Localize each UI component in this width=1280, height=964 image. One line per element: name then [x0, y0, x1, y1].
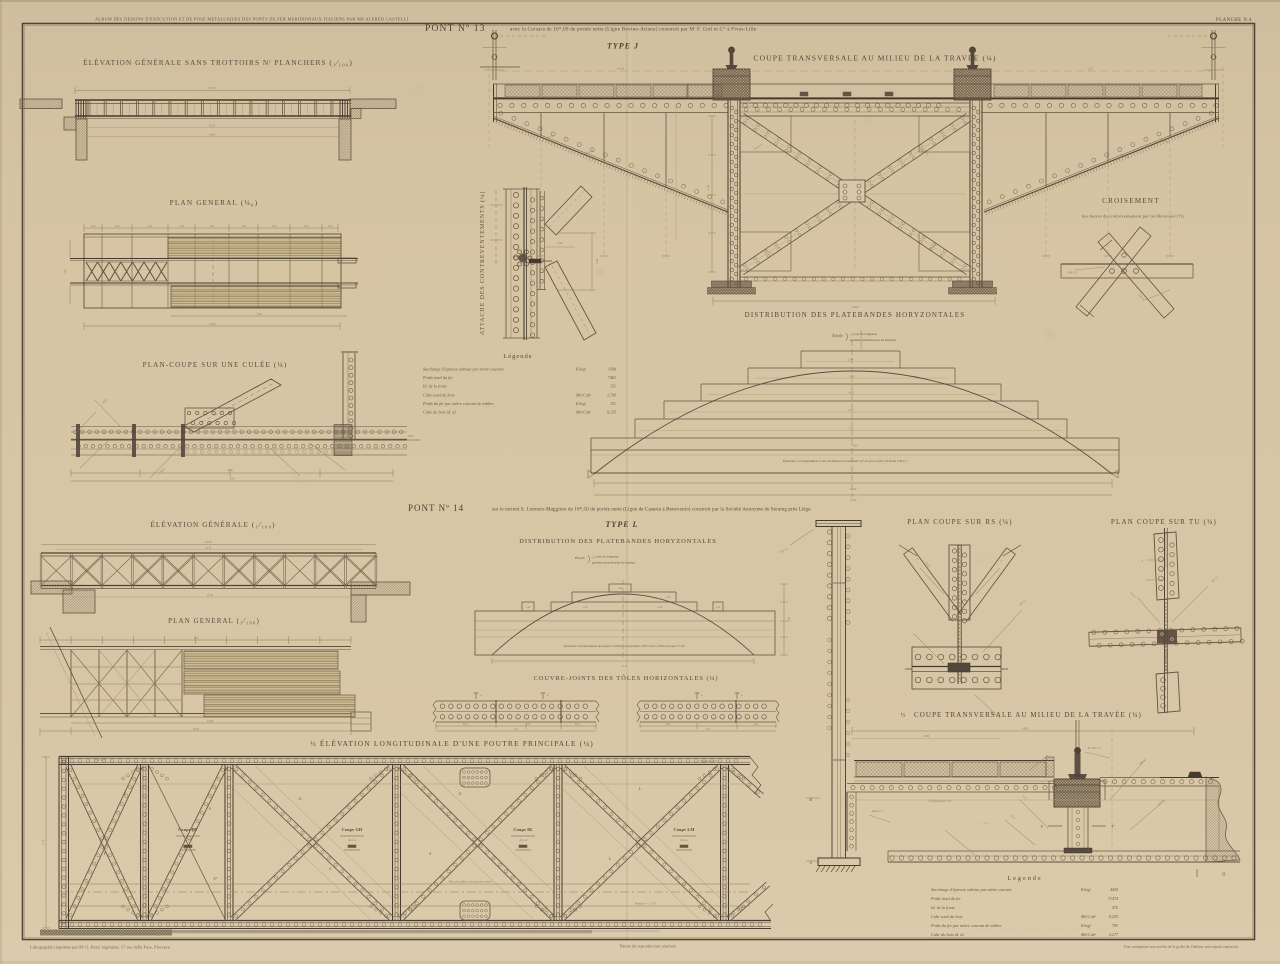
svg-text:1,20: 1,20	[716, 606, 721, 609]
svg-text:ATTACHE DES CONTREVENTEMENTS: ATTACHE DES CONTREVENTEMENTS (¼)	[479, 191, 486, 335]
svg-text:14,00: 14,00	[209, 134, 216, 137]
svg-text:G: G	[459, 791, 462, 796]
svg-text:CROISEMENT: CROISEMENT	[1102, 197, 1160, 205]
svg-text:164 à 12: 164 à 12	[680, 839, 690, 842]
svg-text:7481: 7481	[608, 375, 616, 380]
svg-text:MètʳCubᵉ: MètʳCubᵉ	[1080, 914, 1097, 919]
svg-text:1,00: 1,00	[148, 225, 153, 228]
svg-text:6,40: 6,40	[849, 409, 854, 412]
svg-text:240×12: 240×12	[1068, 272, 1077, 275]
svg-text:1,20: 1,20	[658, 606, 663, 609]
svg-text:16,00: 16,00	[193, 728, 200, 731]
svg-text:9: 9	[1222, 872, 1225, 878]
svg-text:½ ÉLÉVATION LONGITUDINALE D': ½ ÉLÉVATION LONGITUDINALE D'UNE POUTRE P…	[310, 738, 594, 748]
svg-text:1,00: 1,00	[304, 225, 309, 228]
svg-text:2,00: 2,00	[194, 637, 199, 640]
svg-text:Kilogˢ: Kilogˢ	[1080, 887, 1091, 892]
svg-text:2,40: 2,40	[707, 185, 710, 190]
svg-text:Échelle: Échelle	[574, 555, 586, 560]
svg-text:G: G	[299, 796, 302, 801]
svg-text:164 à 12: 164 à 12	[519, 839, 529, 842]
svg-text:Droits de reproduction réservé: Droits de reproduction réservés	[620, 944, 677, 949]
svg-text:₁⁄₅ pour les longueurs: ₁⁄₅ pour les longueurs	[850, 332, 878, 336]
svg-text:← a →: ← a →	[980, 821, 989, 825]
svg-text:0,31: 0,31	[526, 723, 531, 726]
svg-text:1,50: 1,50	[64, 269, 67, 274]
svg-text:Coupe GH: Coupe GH	[342, 827, 363, 832]
svg-text:Surcharge d'épreuve admise par: Surcharge d'épreuve admise par mètre cou…	[931, 887, 1012, 892]
svg-text:1,00: 1,00	[91, 225, 96, 228]
svg-text:PLAN COUPE SUR TU (¼): PLAN COUPE SUR TU (¼)	[1111, 518, 1217, 526]
svg-text:Coupe LM: Coupe LM	[673, 827, 694, 832]
svg-text:1,900: 1,900	[923, 735, 930, 738]
svg-text:S: S	[209, 806, 211, 811]
svg-text:₁⁄₂₀ pour les longueurs: ₁⁄₂₀ pour les longueurs	[592, 555, 619, 559]
svg-text:151: 151	[610, 384, 616, 389]
svg-text:axe de la travure: axe de la travure	[859, 329, 863, 350]
svg-text:1,20: 1,20	[618, 587, 623, 590]
svg-text:Poids du fer par mètre courant: Poids du fer par mètre courant de tablie…	[930, 923, 1002, 928]
svg-text:δ: δ	[429, 851, 431, 856]
svg-text:15,00: 15,00	[207, 720, 214, 723]
svg-text:·: ·	[576, 375, 577, 380]
svg-text:Échelle: Échelle	[831, 333, 843, 338]
svg-text:16,50: 16,50	[207, 594, 214, 597]
svg-text:e': e'	[1000, 559, 1002, 563]
svg-text:1,20: 1,20	[583, 606, 588, 609]
svg-text:Id. de la fonte: Id. de la fonte	[422, 384, 447, 389]
svg-text:RAIL: RAIL	[408, 435, 414, 438]
svg-text:1,20: 1,20	[666, 596, 671, 599]
svg-text:Cube total du bois: Cube total du bois	[423, 392, 455, 397]
svg-text:Poids total du fer: Poids total du fer	[930, 896, 961, 901]
svg-text:·: ·	[576, 384, 577, 389]
svg-text:0,45·₃: 0,45·₃	[575, 723, 581, 726]
svg-text:Cube du bois id.: Cube du bois id. id.	[423, 410, 457, 415]
svg-text:1,00: 1,00	[179, 225, 184, 228]
svg-text:Légende: Légende	[503, 353, 532, 360]
svg-text:sur le torrent S. Lorenzo-Magg: sur le torrent S. Lorenzo-Maggiore de 16…	[492, 506, 811, 513]
svg-text:Coupe EF: Coupe EF	[178, 827, 198, 832]
svg-text:164 à 12: 164 à 12	[184, 839, 194, 842]
svg-text:ÉLÉVATION GÉNÉRALE SANS TRO: ÉLÉVATION GÉNÉRALE SANS TROTTOIRS Nⁱ PLA…	[83, 57, 353, 67]
svg-text:1,00: 1,00	[328, 225, 333, 228]
svg-text:·: ·	[1081, 896, 1082, 901]
svg-text:DISTRIBUTION DES PLATEBANDES: DISTRIBUTION DES PLATEBANDES HORYZONTALE…	[745, 311, 966, 319]
svg-text:PONT Nº 13: PONT Nº 13	[425, 24, 486, 34]
svg-text:DISTRIBUTION DES PLATEBANDES: DISTRIBUTION DES PLATEBANDES HORYZONTALE…	[519, 538, 717, 545]
svg-text:1,90: 1,90	[848, 359, 853, 362]
svg-text:ÉLÉVATION GÉNÉRALE (₁⁄₁₀₀): ÉLÉVATION GÉNÉRALE (₁⁄₁₀₀)	[150, 519, 275, 529]
svg-text:Cube du bois id.: Cube du bois id. id.	[931, 932, 965, 937]
svg-text:Kilogˢ: Kilogˢ	[1080, 923, 1091, 928]
svg-text:151: 151	[610, 401, 616, 406]
svg-text:4,90: 4,90	[849, 392, 854, 395]
svg-text:Fig. à M.: Fig. à M.	[94, 758, 106, 762]
svg-text:PLAN-COUPE SUR UNE CULÉE (¼: PLAN-COUPE SUR UNE CULÉE (¼)	[143, 359, 288, 369]
svg-text:·: ·	[1081, 905, 1082, 910]
svg-text:COUPE TRANSVERSALE AU MILIE: COUPE TRANSVERSALE AU MILIEU DE LA TRAVÉ…	[914, 711, 1142, 719]
svg-text:1,00: 1,00	[210, 225, 215, 228]
svg-text:4450: 4450	[1110, 887, 1118, 892]
svg-text:Entraxes à 2ᵐ: Entraxes à 2ᵐ	[699, 759, 718, 763]
svg-text:9,40: 9,40	[853, 445, 858, 448]
svg-text:1500: 1500	[608, 367, 616, 372]
svg-text:0,60: 0,60	[666, 723, 671, 726]
svg-text:0,45·₃: 0,45·₃	[463, 723, 469, 726]
svg-text:M 160×14: M 160×14	[1088, 746, 1101, 750]
svg-text:TYPE J: TYPE J	[607, 42, 639, 51]
svg-text:MètʳCubᵉ: MètʳCubᵉ	[1080, 932, 1097, 937]
svg-text:TYPE L: TYPE L	[606, 520, 639, 529]
svg-text:Kilogˢ: Kilogˢ	[575, 367, 586, 372]
svg-text:Legende: Legende	[1007, 875, 1042, 882]
svg-text:avec la Corsara de 10ᵐ,00 de p: avec la Corsara de 10ᵐ,00 de portée nett…	[510, 26, 757, 33]
svg-text:7,90: 7,90	[849, 428, 854, 431]
svg-text:0,45: 0,45	[788, 617, 791, 622]
svg-text:783: 783	[1112, 923, 1118, 928]
svg-text:Rails à T: Rails à T	[871, 809, 883, 813]
svg-text:PONT Nº 14: PONT Nº 14	[408, 503, 464, 513]
svg-text:Id. de la fonte: Id. de la fonte	[930, 905, 955, 910]
svg-text:1,02: 1,02	[706, 728, 711, 731]
svg-text:13,10: 13,10	[621, 665, 628, 668]
svg-text:1,00: 1,00	[241, 225, 246, 228]
svg-text:1,20: 1,20	[526, 606, 531, 609]
svg-text:164 à 12: 164 à 12	[348, 839, 358, 842]
svg-text:F: F	[103, 851, 107, 856]
svg-text:PLANCHE N.4: PLANCHE N.4	[1216, 18, 1252, 23]
svg-text:0,42: 0,42	[754, 723, 759, 726]
svg-text:½: ½	[901, 712, 906, 719]
svg-text:MètʳCubᵉ: MètʳCubᵉ	[575, 410, 592, 415]
svg-text:Kilogˢ: Kilogˢ	[575, 401, 586, 406]
svg-text:Surcharge d'épreuve admise par: Surcharge d'épreuve admise par mètre cou…	[423, 367, 504, 372]
svg-text:470: 470	[1112, 905, 1118, 910]
svg-text:PLAN GENERAL (₁⁄₁₀₀): PLAN GENERAL (₁⁄₁₀₀)	[168, 617, 260, 625]
svg-text:Poids total du fer: Poids total du fer	[422, 375, 453, 380]
svg-text:Coupe IK: Coupe IK	[513, 827, 533, 832]
svg-text:des barres du contreventement: des barres du contreventement par les Bo…	[1082, 214, 1184, 219]
svg-text:1,00: 1,00	[272, 225, 277, 228]
svg-text:1,45: 1,45	[514, 728, 519, 731]
svg-text:71474: 71474	[1108, 896, 1118, 901]
svg-text:COUPE TRANSVERSALE AU MILIE: COUPE TRANSVERSALE AU MILIEU DE LA TRAVÉ…	[753, 53, 996, 63]
svg-text:δ: δ	[329, 866, 331, 871]
svg-text:PLAN GENERAL (¼₀): PLAN GENERAL (¼₀)	[170, 199, 259, 207]
svg-text:grandeur naturelle pour les ha: grandeur naturelle pour les hauteurs	[850, 338, 897, 342]
svg-text:Poids du fer par mètre courant: Poids du fer par mètre courant de tablie…	[422, 401, 494, 406]
svg-text:Tout exemplaire non revêtu de: Tout exemplaire non revêtu de la griffe …	[1124, 945, 1238, 949]
svg-text:Plan du tablier (niveau des ve: Plan du tablier (niveau des vents)	[447, 880, 491, 884]
svg-text:ALBUM DES DESSINS D'EXECUTION: ALBUM DES DESSINS D'EXECUTION ET DE POSE…	[95, 17, 409, 22]
svg-text:COUVRE-JOINTS DES TÔLES HOR: COUVRE-JOINTS DES TÔLES HORIZONTALES (¼)	[533, 674, 718, 682]
svg-text:grandeur naturelle pour les ha: grandeur naturelle pour les hauteurs	[592, 561, 636, 565]
svg-text:F: F	[123, 791, 127, 796]
svg-text:0,40: 0,40	[558, 242, 563, 245]
svg-text:1,00: 1,00	[115, 225, 120, 228]
svg-text:15,00: 15,00	[209, 125, 216, 128]
svg-text:Cube total du bois: Cube total du bois	[931, 914, 963, 919]
svg-text:PLAN COUPE SUR RS (¼): PLAN COUPE SUR RS (¼)	[907, 518, 1013, 526]
svg-text:MètʳCubᵉ: MètʳCubᵉ	[575, 392, 592, 397]
svg-text:16,50: 16,50	[205, 547, 212, 550]
